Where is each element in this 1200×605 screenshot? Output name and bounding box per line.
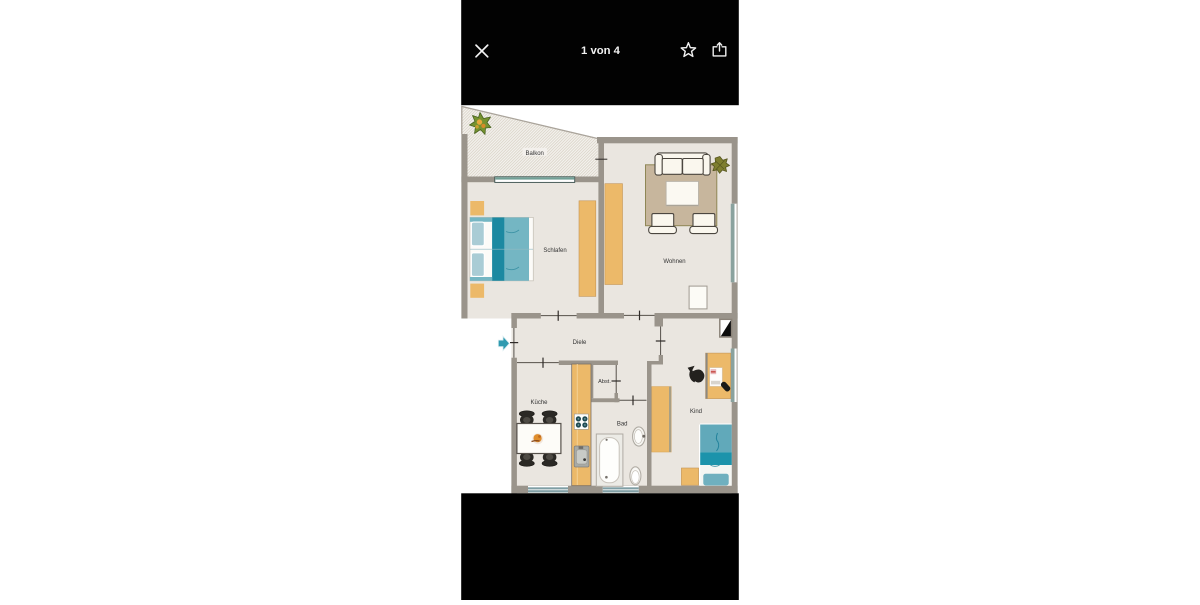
svg-text:Bad: Bad [617, 422, 628, 428]
svg-text:Küche: Küche [530, 400, 548, 406]
svg-text:Schlafen: Schlafen [543, 248, 566, 254]
svg-text:Balkon: Balkon [526, 151, 544, 157]
svg-text:Kind: Kind [690, 409, 702, 415]
svg-text:Abst.: Abst. [598, 379, 611, 385]
svg-text:Diele: Diele [573, 340, 587, 346]
svg-text:Wohnen: Wohnen [663, 259, 685, 265]
svg-text:1 von 4: 1 von 4 [581, 45, 621, 57]
